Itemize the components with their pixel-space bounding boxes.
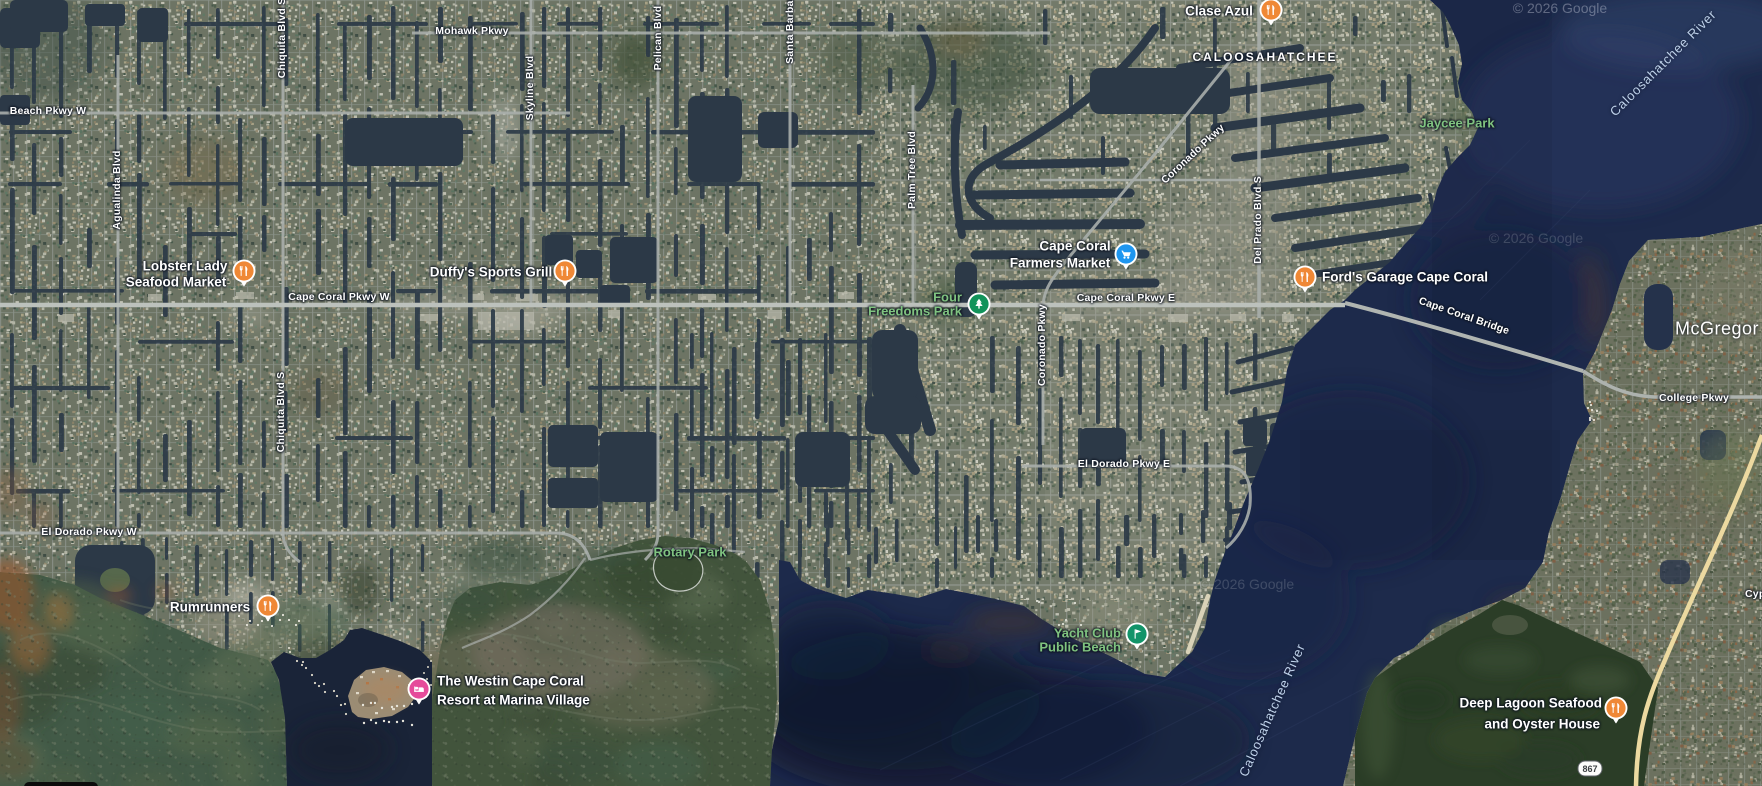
svg-text:867: 867 [1582, 764, 1597, 774]
